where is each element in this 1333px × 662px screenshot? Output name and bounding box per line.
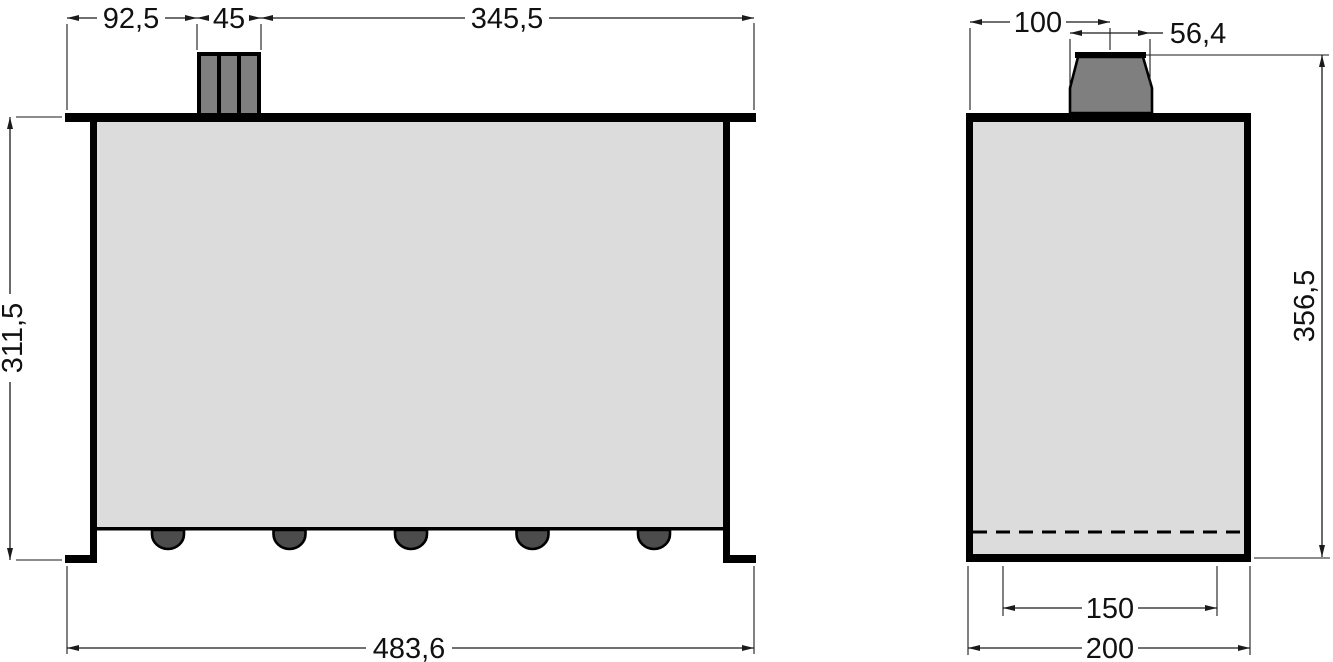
- dim-label-front-top-right: 345,5: [471, 3, 544, 35]
- bump-2: [274, 530, 306, 549]
- front-foot-left: [65, 555, 97, 563]
- front-view: 92,5 45 345,5 311,5 483,6: [0, 3, 756, 662]
- front-width-dimension: 483,6: [67, 566, 754, 662]
- dim-label-side-inner-width: 150: [1086, 593, 1134, 625]
- drawing-canvas: 92,5 45 345,5 311,5 483,6: [0, 0, 1333, 662]
- bump-3: [395, 530, 427, 549]
- dim-label-front-block-width: 45: [213, 3, 245, 35]
- side-cap-top-edge: [1075, 52, 1146, 58]
- front-top-dimensions: 92,5 45 345,5: [67, 3, 754, 110]
- bump-4: [517, 530, 549, 549]
- dim-label-side-total-height: 356,5: [1289, 270, 1321, 343]
- dim-label-front-total-width: 483,6: [373, 633, 446, 662]
- front-height-dimension: 311,5: [0, 117, 62, 560]
- side-body: [973, 122, 1244, 555]
- bump-1: [152, 530, 184, 549]
- dim-label-side-total-width: 200: [1086, 633, 1134, 662]
- front-bottom-bumps: [152, 530, 670, 549]
- side-top-flange: [966, 113, 1251, 122]
- side-right-edge: [1244, 122, 1251, 562]
- front-block-rib-1: [201, 56, 217, 113]
- front-body-right-edge: [723, 122, 730, 563]
- dim-label-side-cap-offset: 100: [1014, 7, 1062, 39]
- dim-label-front-height: 311,5: [0, 303, 29, 373]
- side-left-edge: [966, 122, 973, 562]
- technical-drawing: 92,5 45 345,5 311,5 483,6: [0, 0, 1333, 662]
- side-bottom-edge: [966, 554, 1251, 562]
- front-foot-right: [723, 555, 756, 563]
- bump-5: [638, 530, 670, 549]
- front-block-rib-3: [241, 56, 257, 113]
- side-cap-body: [1070, 57, 1152, 113]
- dim-label-side-cap-width: 56,4: [1170, 18, 1226, 50]
- front-body: [97, 122, 723, 530]
- side-cap: [1070, 52, 1152, 113]
- front-top-flange: [65, 113, 756, 122]
- front-top-block: [197, 52, 261, 113]
- side-view: 100 56,4 356,5 150: [966, 7, 1330, 662]
- front-body-left-edge: [90, 122, 97, 563]
- dim-label-front-top-left: 92,5: [103, 3, 159, 35]
- front-block-rib-2: [221, 56, 237, 113]
- side-inner-width-dimension: 150: [1003, 566, 1217, 625]
